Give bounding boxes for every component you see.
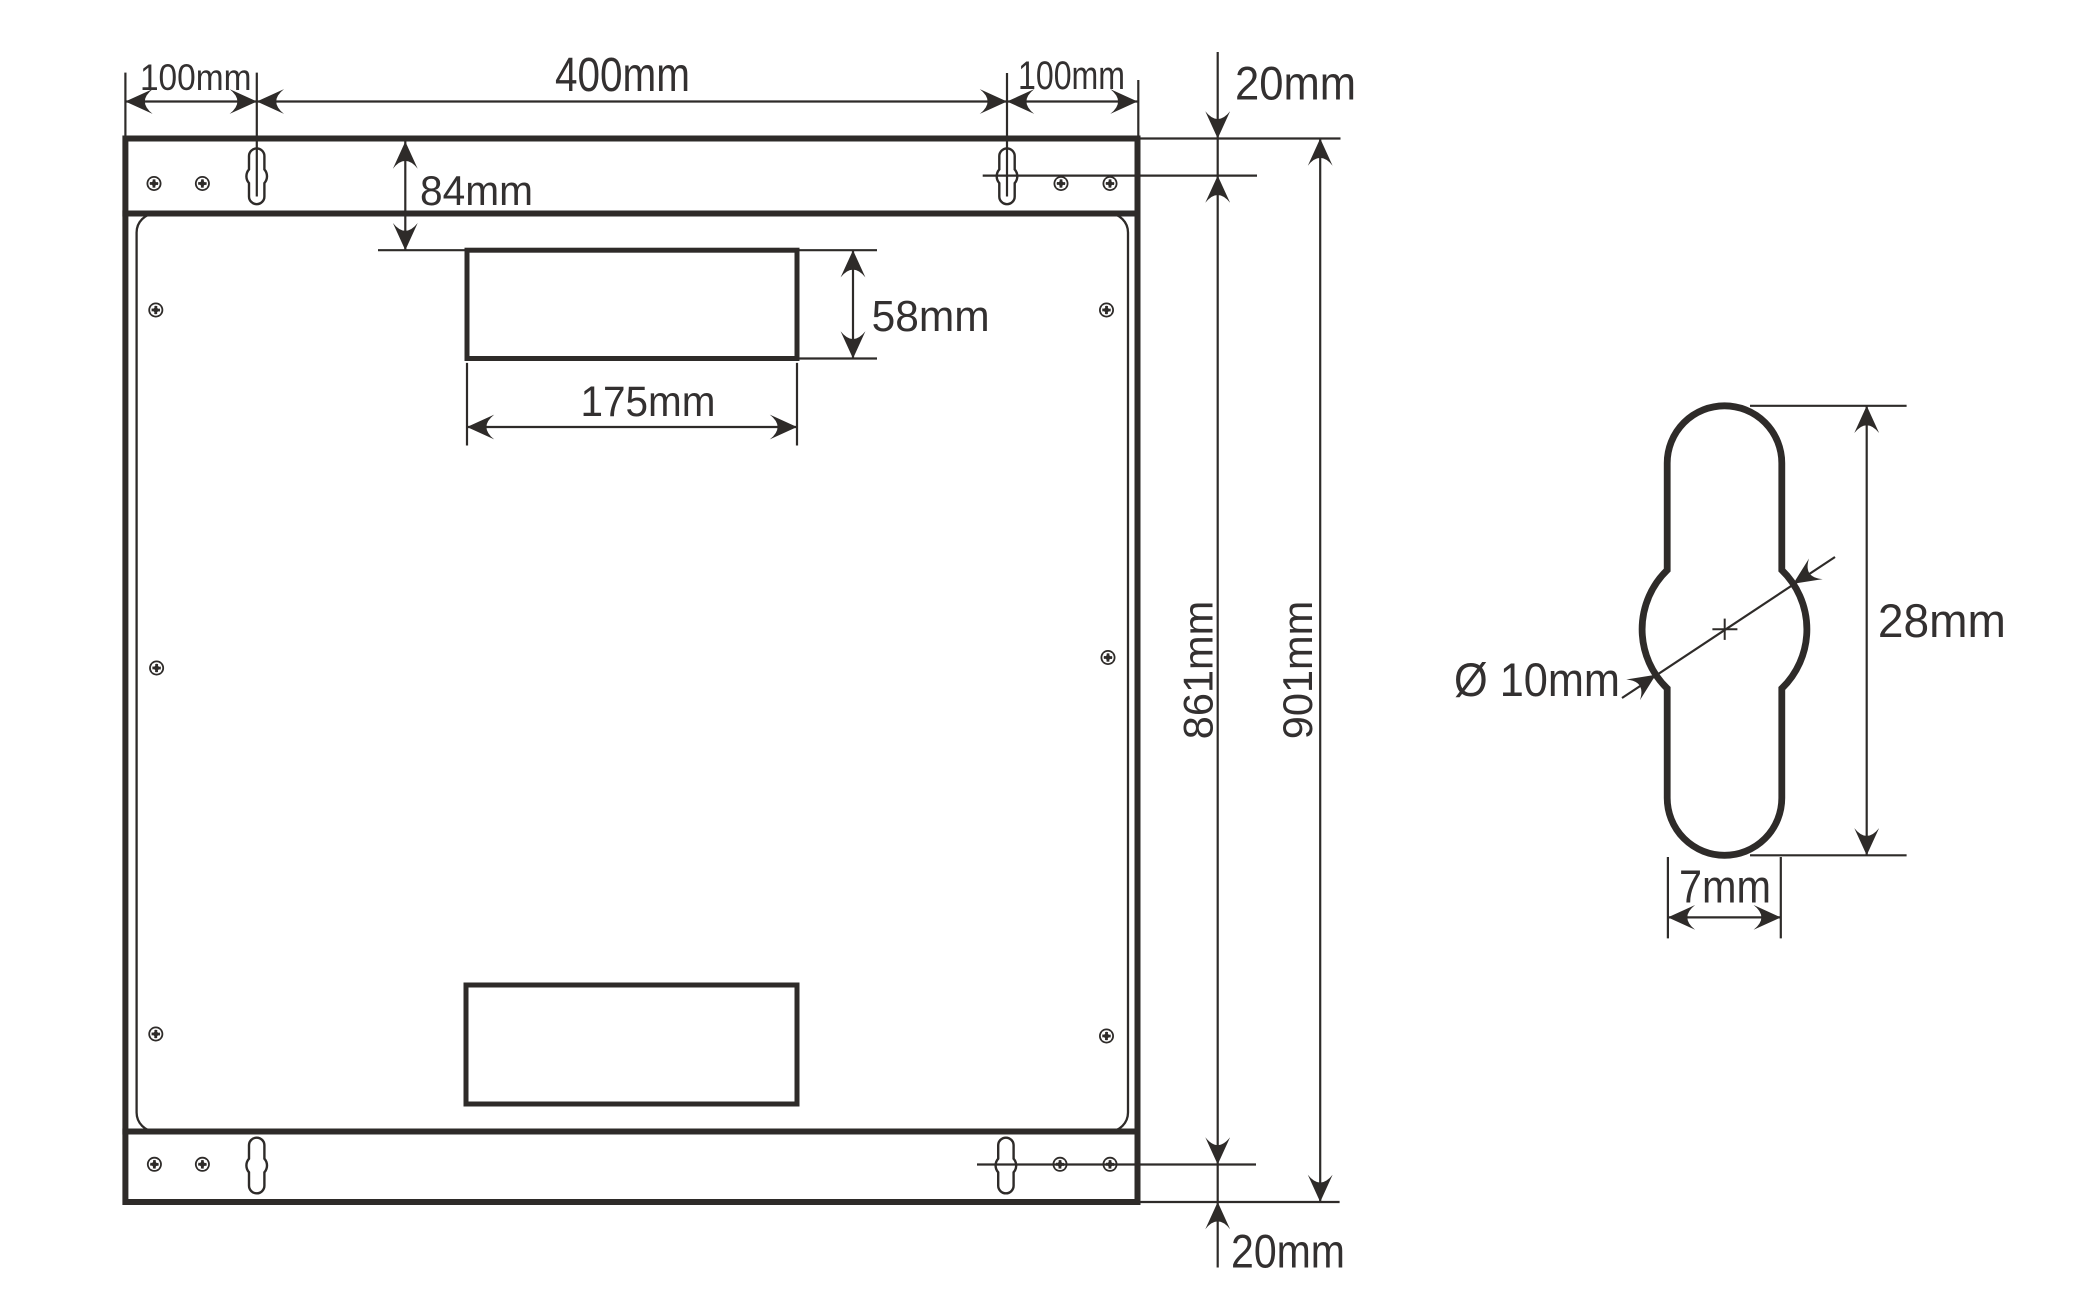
svg-text:20mm: 20mm <box>1231 1225 1345 1278</box>
svg-text:58mm: 58mm <box>872 292 990 341</box>
svg-text:28mm: 28mm <box>1878 594 2006 647</box>
svg-text:175mm: 175mm <box>581 378 716 426</box>
svg-text:100mm: 100mm <box>140 57 252 98</box>
svg-text:901mm: 901mm <box>1274 601 1321 739</box>
svg-text:20mm: 20mm <box>1235 57 1356 110</box>
svg-text:84mm: 84mm <box>420 167 533 214</box>
svg-text:861mm: 861mm <box>1175 601 1222 739</box>
svg-text:100mm: 100mm <box>1018 54 1125 98</box>
svg-text:Ø 10mm: Ø 10mm <box>1454 653 1620 706</box>
svg-text:7mm: 7mm <box>1679 861 1771 913</box>
svg-text:400mm: 400mm <box>555 49 690 102</box>
